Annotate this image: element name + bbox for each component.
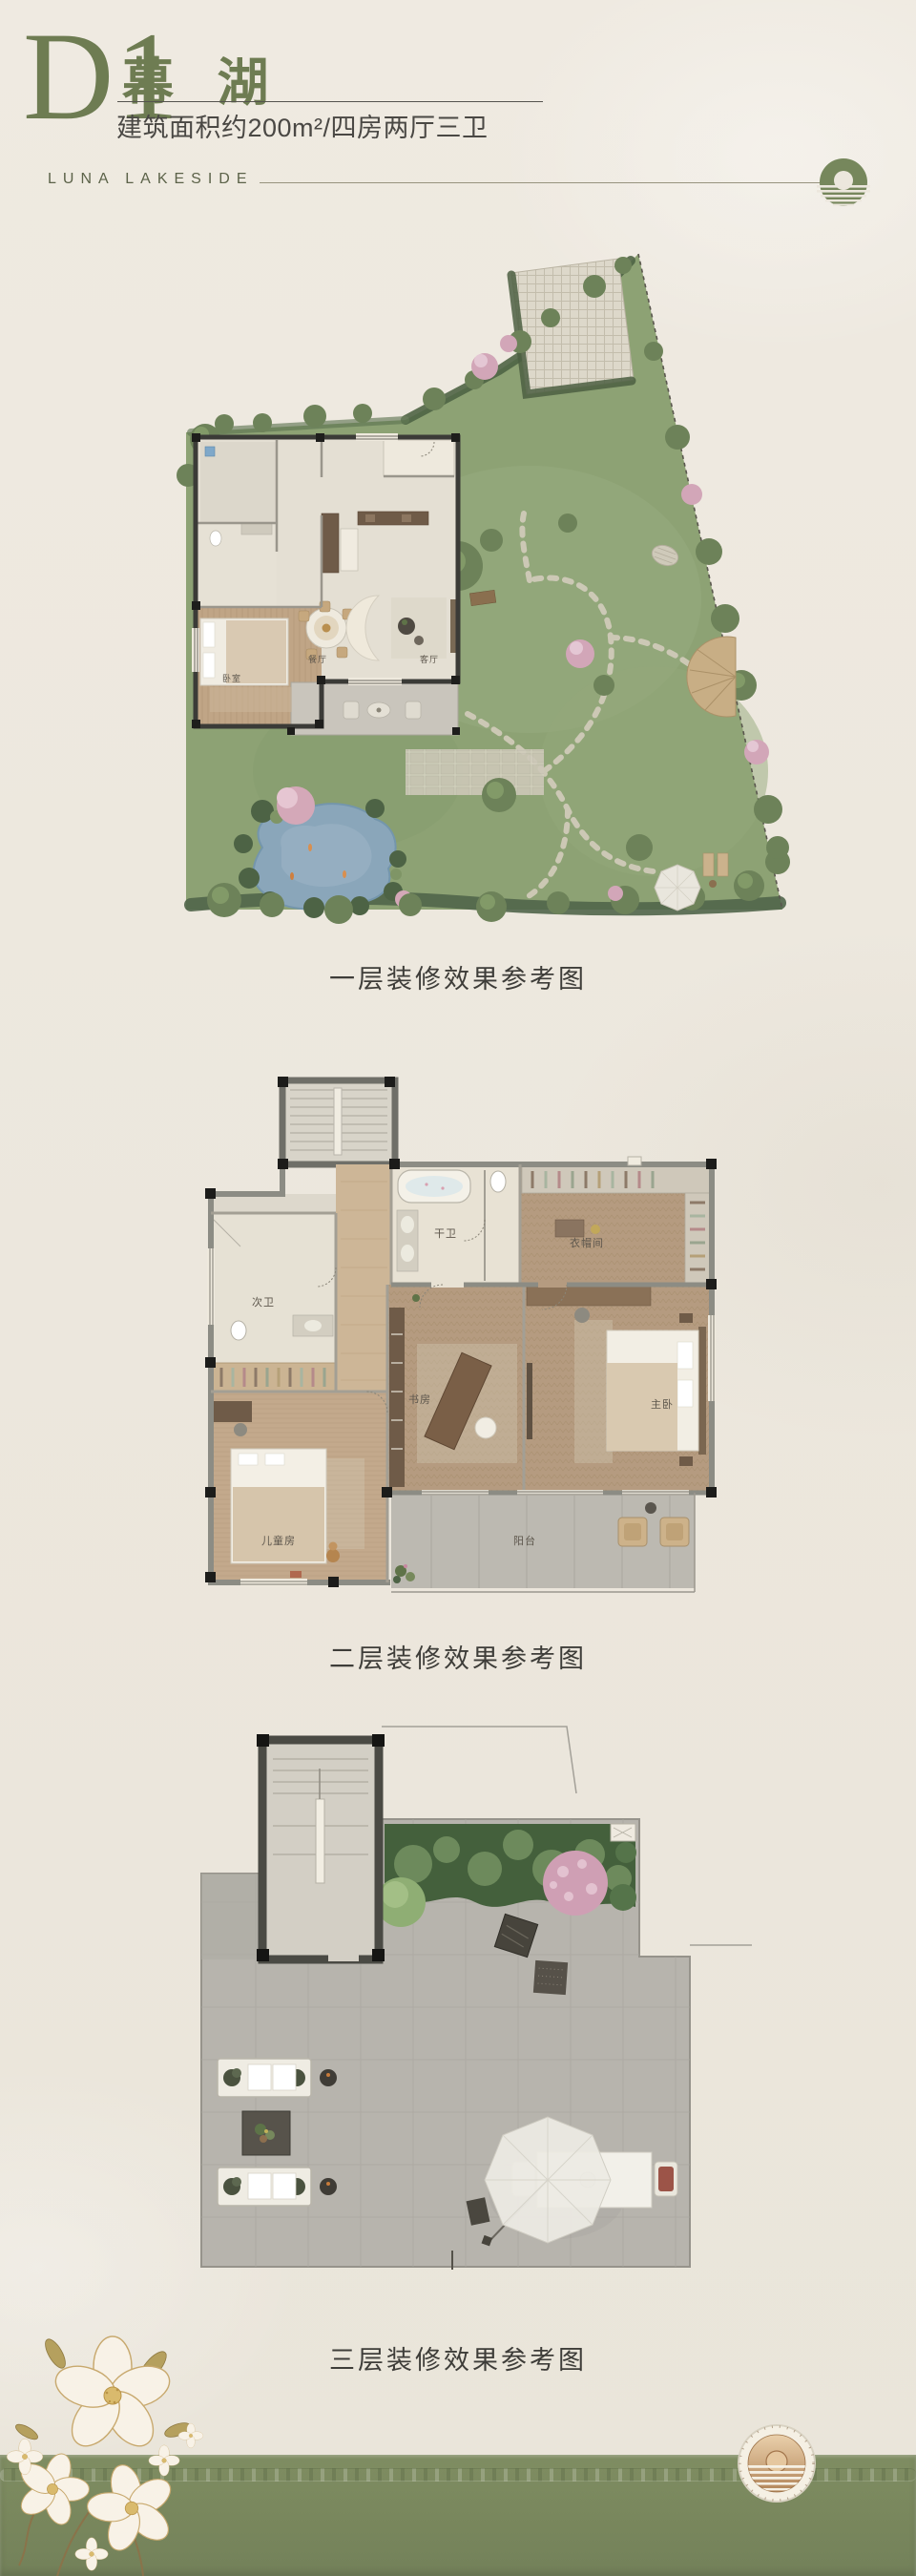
second-bath-label: 次卫 [252, 1295, 275, 1309]
guest-bath-label: 干卫 [434, 1228, 457, 1240]
master-bedroom [524, 1285, 712, 1493]
spec-underline [117, 101, 543, 102]
white-blossom-decoration [0, 2317, 229, 2576]
floor-3-plan [141, 1711, 752, 2293]
stair-tower [257, 1734, 385, 1961]
study-label: 书房 [408, 1393, 431, 1406]
bedroom-label: 卧室 [222, 673, 241, 683]
floor-1-plan: 餐厅 客厅 卧室 [119, 237, 864, 924]
master-label: 主卧 [651, 1398, 674, 1411]
living-sofa [346, 596, 456, 660]
kids-wardrobe [211, 1363, 336, 1392]
brochure-page: D1 幕 湖 建筑面积约200m²/四房两厅三卫 LUNA LAKESIDE [0, 0, 916, 2576]
sun-over-lake-icon [817, 156, 870, 209]
corridor [336, 1164, 391, 1392]
closet-label: 衣帽间 [570, 1236, 604, 1249]
brand-name: LUNA LAKESIDE [48, 171, 254, 188]
spec-line: 建筑面积约200m²/四房两厅三卫 [116, 107, 489, 144]
floor-2-caption: 二层装修效果参考图 [0, 1638, 916, 1675]
guest-bath [391, 1164, 520, 1285]
second-bath [211, 1213, 336, 1363]
stairwell [282, 1080, 395, 1164]
study [387, 1285, 524, 1493]
floor-2-plan: 干卫 衣帽间 次卫 书房 主卧 儿童房 阳台 [202, 1077, 737, 1611]
kids-room-label: 儿童房 [261, 1534, 296, 1547]
bronze-sun-seal-icon [737, 2422, 817, 2504]
balcony-label: 阳台 [513, 1534, 536, 1547]
bedroom-bed [200, 618, 292, 712]
unit-name: 幕 湖 [122, 40, 284, 115]
house-floor-1: 餐厅 客厅 卧室 [192, 433, 460, 735]
kids-room [211, 1392, 387, 1582]
balcony [391, 1493, 695, 1588]
brand-underline [260, 182, 830, 183]
walk-in-closet [520, 1164, 712, 1285]
paver-patio [406, 749, 544, 795]
living-label: 客厅 [420, 654, 439, 664]
floor-1-caption: 一层装修效果参考图 [0, 958, 916, 995]
dining-label: 餐厅 [308, 654, 327, 664]
gravel-pad [511, 259, 634, 394]
